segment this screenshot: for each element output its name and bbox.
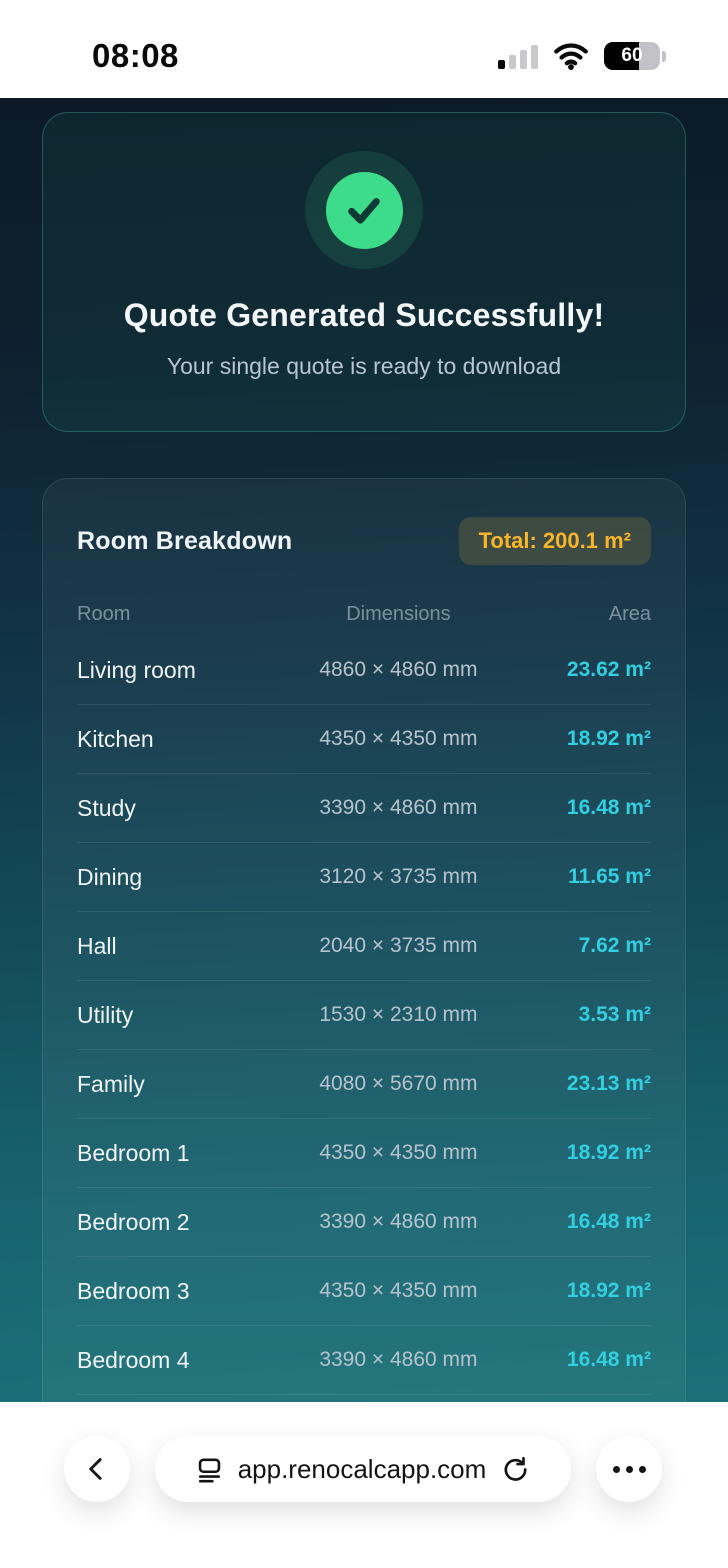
browser-bottom-bar: app.renocalcapp.com [0,1402,728,1568]
table-row: Bedroom 3 4350 × 4350 mm 18.92 m² [77,1257,651,1326]
wifi-icon [553,42,589,70]
room-area: 18.92 m² [519,1141,651,1165]
success-title: Quote Generated Successfully! [43,297,685,334]
room-area: 18.92 m² [519,1279,651,1303]
room-area: 16.48 m² [519,1348,651,1372]
check-circle-icon [326,172,403,249]
status-bar: 08:08 60 [0,0,728,98]
room-area: 11.65 m² [519,865,651,889]
column-header-area: Area [519,603,651,626]
success-subtitle: Your single quote is ready to download [43,353,685,380]
room-dimensions: 3120 × 3735 mm [278,865,519,889]
room-breakdown-title: Room Breakdown [77,527,292,556]
room-name: Dining [77,864,278,891]
room-name: Family [77,1071,278,1098]
room-name: Study [77,795,278,822]
chevron-left-icon [82,1454,112,1484]
total-area-badge: Total: 200.1 m² [459,517,651,565]
ellipsis-icon [613,1466,646,1473]
table-row: Dining 3120 × 3735 mm 11.65 m² [77,843,651,912]
room-dimensions: 4080 × 5670 mm [278,1072,519,1096]
room-area: 23.13 m² [519,1072,651,1096]
table-row: Bedroom 4 3390 × 4860 mm 16.48 m² [77,1326,651,1395]
more-button[interactable] [596,1436,662,1502]
table-row: Family 4080 × 5670 mm 23.13 m² [77,1050,651,1119]
success-check-halo [305,151,423,269]
column-header-room: Room [77,603,278,626]
room-name: Kitchen [77,726,278,753]
table-row: Kitchen 4350 × 4350 mm 18.92 m² [77,705,651,774]
table-row: Hall 2040 × 3735 mm 7.62 m² [77,912,651,981]
room-area: 18.92 m² [519,727,651,751]
room-dimensions: 3390 × 4860 mm [278,1210,519,1234]
table-row: Living room 4860 × 4860 mm 23.62 m² [77,636,651,705]
battery-icon: 60 [604,42,666,70]
table-header: Room Dimensions Area [77,603,651,626]
success-card: Quote Generated Successfully! Your singl… [42,112,686,432]
room-name: Utility [77,1002,278,1029]
room-name: Bedroom 2 [77,1209,278,1236]
room-name: Bedroom 3 [77,1278,278,1305]
room-area: 23.62 m² [519,658,651,682]
room-area: 16.48 m² [519,796,651,820]
room-table-body: Living room 4860 × 4860 mm 23.62 m² Kitc… [77,636,651,1395]
room-area: 3.53 m² [519,1003,651,1027]
table-row: Utility 1530 × 2310 mm 3.53 m² [77,981,651,1050]
room-dimensions: 2040 × 3735 mm [278,934,519,958]
room-name: Bedroom 4 [77,1347,278,1374]
room-area: 7.62 m² [519,934,651,958]
cellular-signal-icon [498,44,538,69]
back-button[interactable] [64,1436,130,1502]
room-dimensions: 1530 × 2310 mm [278,1003,519,1027]
url-text: app.renocalcapp.com [238,1454,487,1485]
room-name: Hall [77,933,278,960]
reader-icon [196,1456,223,1483]
address-bar[interactable]: app.renocalcapp.com [155,1436,571,1502]
clock: 08:08 [92,37,179,75]
battery-percent: 60 [604,42,660,70]
table-row: Bedroom 2 3390 × 4860 mm 16.48 m² [77,1188,651,1257]
room-dimensions: 4350 × 4350 mm [278,1141,519,1165]
room-breakdown-card: Room Breakdown Total: 200.1 m² Room Dime… [42,478,686,1402]
column-header-dimensions: Dimensions [278,603,519,626]
room-name: Living room [77,657,278,684]
room-name: Bedroom 1 [77,1140,278,1167]
table-row: Bedroom 1 4350 × 4350 mm 18.92 m² [77,1119,651,1188]
page-background: Quote Generated Successfully! Your singl… [0,98,728,1402]
room-dimensions: 3390 × 4860 mm [278,1348,519,1372]
status-icons: 60 [498,42,666,70]
reload-icon[interactable] [501,1455,530,1484]
room-area: 16.48 m² [519,1210,651,1234]
room-dimensions: 3390 × 4860 mm [278,796,519,820]
room-dimensions: 4860 × 4860 mm [278,658,519,682]
room-dimensions: 4350 × 4350 mm [278,1279,519,1303]
room-dimensions: 4350 × 4350 mm [278,727,519,751]
table-row: Study 3390 × 4860 mm 16.48 m² [77,774,651,843]
